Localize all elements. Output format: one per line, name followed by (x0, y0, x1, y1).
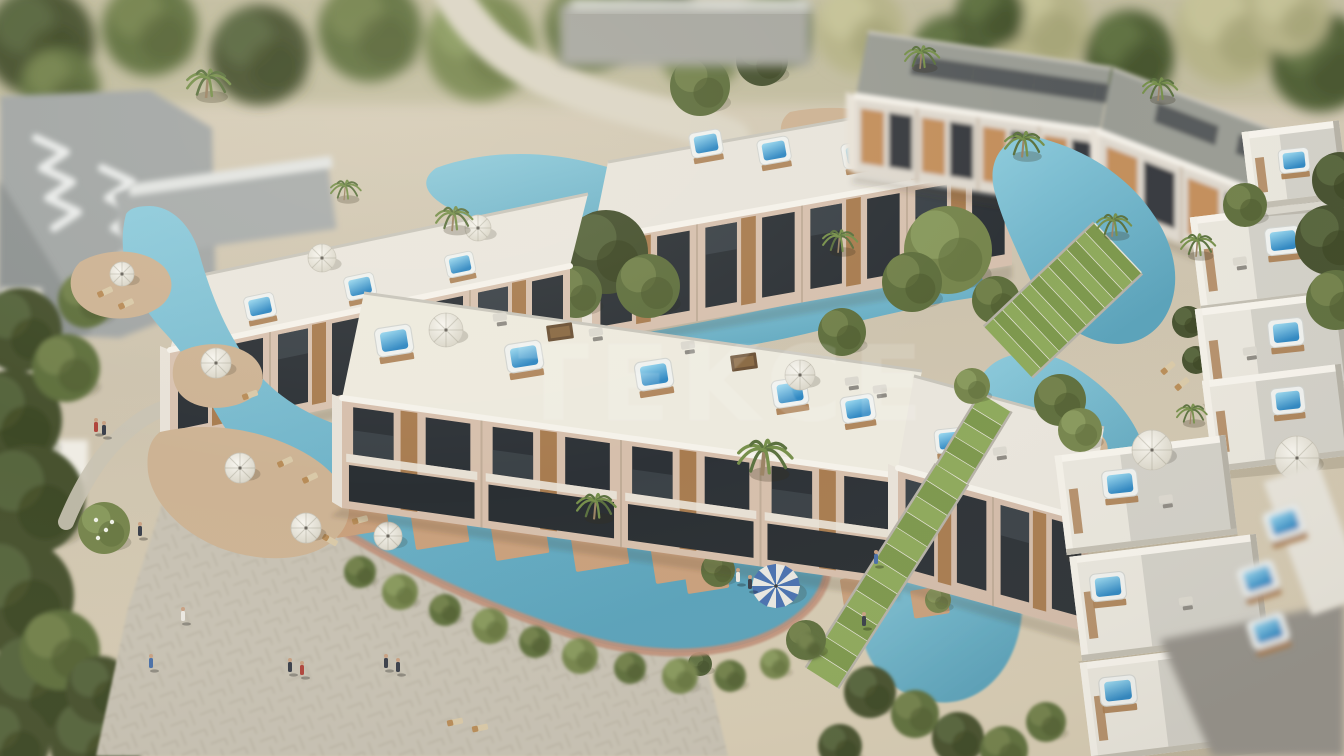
aerial-scene: TEKCE (0, 0, 1344, 756)
watermark: TEKCE (518, 323, 933, 445)
resort-aerial-render: TEKCE (0, 0, 1344, 756)
